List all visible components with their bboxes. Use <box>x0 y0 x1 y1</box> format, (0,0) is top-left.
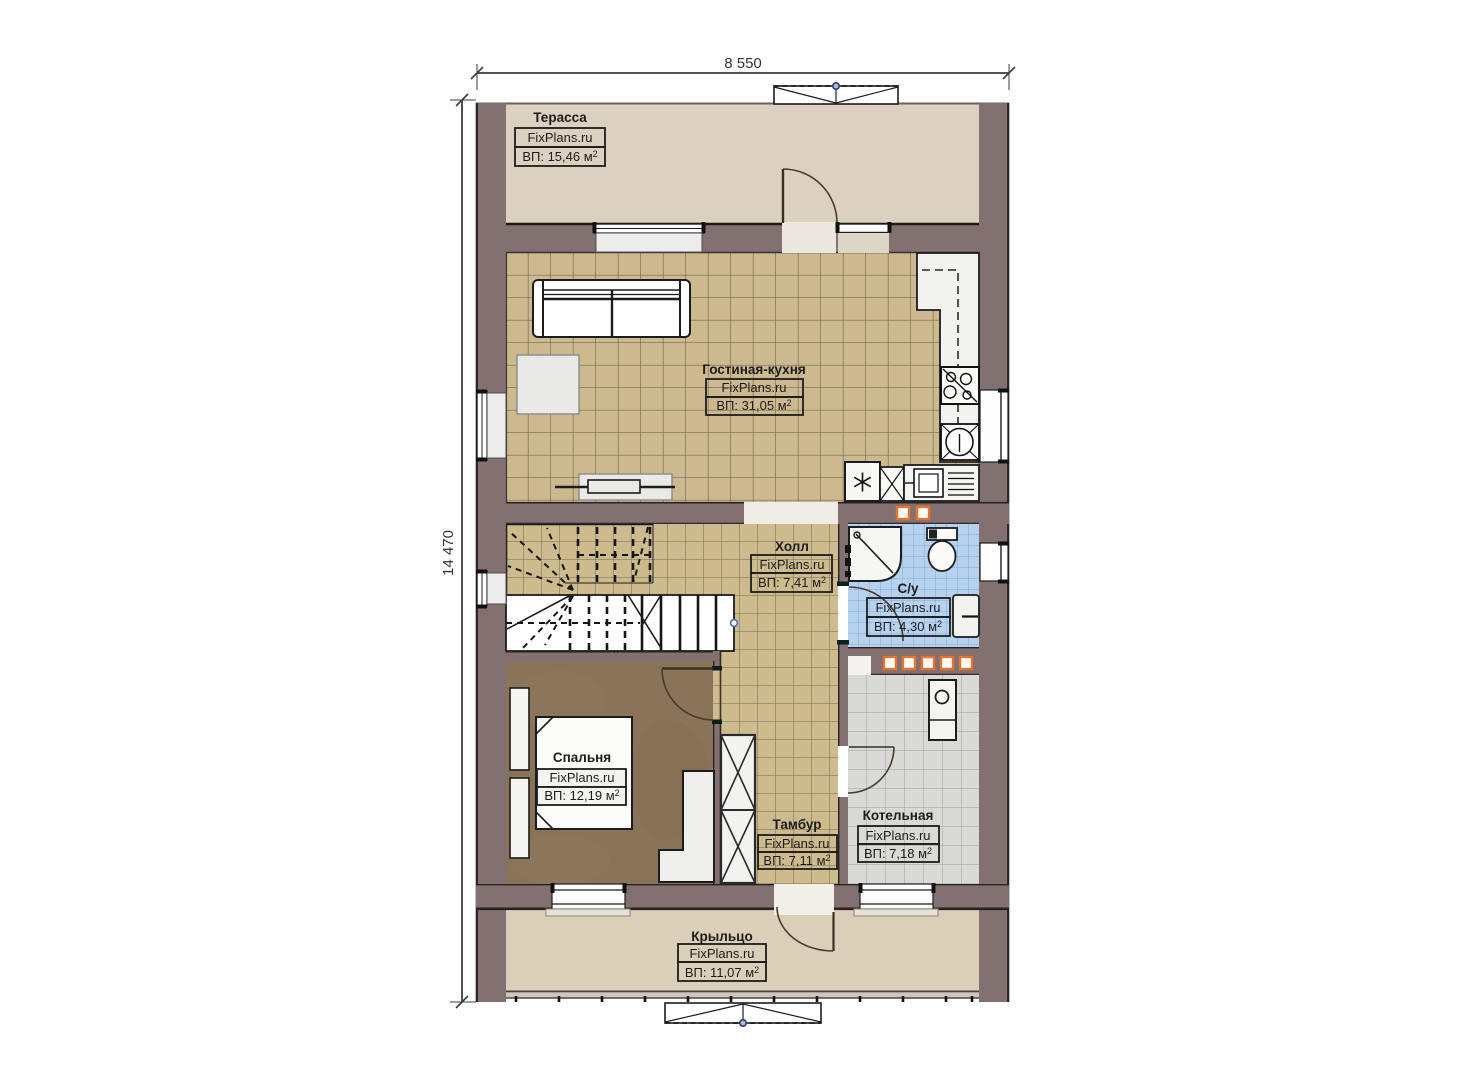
svg-text:Спальня: Спальня <box>553 750 611 765</box>
svg-text:ВП: 4,30 м2: ВП: 4,30 м2 <box>874 619 942 634</box>
svg-text:С/у: С/у <box>897 581 919 596</box>
svg-text:ВП: 7,11 м2: ВП: 7,11 м2 <box>763 853 830 868</box>
svg-text:14 470: 14 470 <box>440 530 457 576</box>
svg-text:FixPlans.ru: FixPlans.ru <box>689 946 754 961</box>
svg-text:Терасса: Терасса <box>533 110 587 125</box>
svg-text:ВП: 7,18 м2: ВП: 7,18 м2 <box>864 846 932 861</box>
svg-text:ВП: 15,46 м2: ВП: 15,46 м2 <box>522 149 597 164</box>
svg-text:Тамбур: Тамбур <box>773 817 822 832</box>
svg-text:8 550: 8 550 <box>724 55 762 72</box>
svg-text:ВП: 7,41 м2: ВП: 7,41 м2 <box>758 575 826 590</box>
svg-text:ВП: 11,07 м2: ВП: 11,07 м2 <box>685 965 759 980</box>
svg-text:FixPlans.ru: FixPlans.ru <box>721 380 786 395</box>
svg-text:FixPlans.ru: FixPlans.ru <box>764 836 829 851</box>
svg-text:Котельная: Котельная <box>863 808 934 823</box>
svg-text:Крыльцо: Крыльцо <box>691 929 752 944</box>
svg-text:FixPlans.ru: FixPlans.ru <box>865 828 930 843</box>
svg-text:ВП: 31,05 м2: ВП: 31,05 м2 <box>716 398 791 413</box>
svg-text:Холл: Холл <box>775 539 809 554</box>
svg-text:FixPlans.ru: FixPlans.ru <box>875 600 940 615</box>
svg-text:ВП: 12,19 м2: ВП: 12,19 м2 <box>544 788 619 803</box>
svg-text:FixPlans.ru: FixPlans.ru <box>527 130 592 145</box>
svg-text:FixPlans.ru: FixPlans.ru <box>549 770 614 785</box>
svg-text:Гостиная-кухня: Гостиная-кухня <box>702 362 805 377</box>
svg-text:FixPlans.ru: FixPlans.ru <box>759 557 824 572</box>
